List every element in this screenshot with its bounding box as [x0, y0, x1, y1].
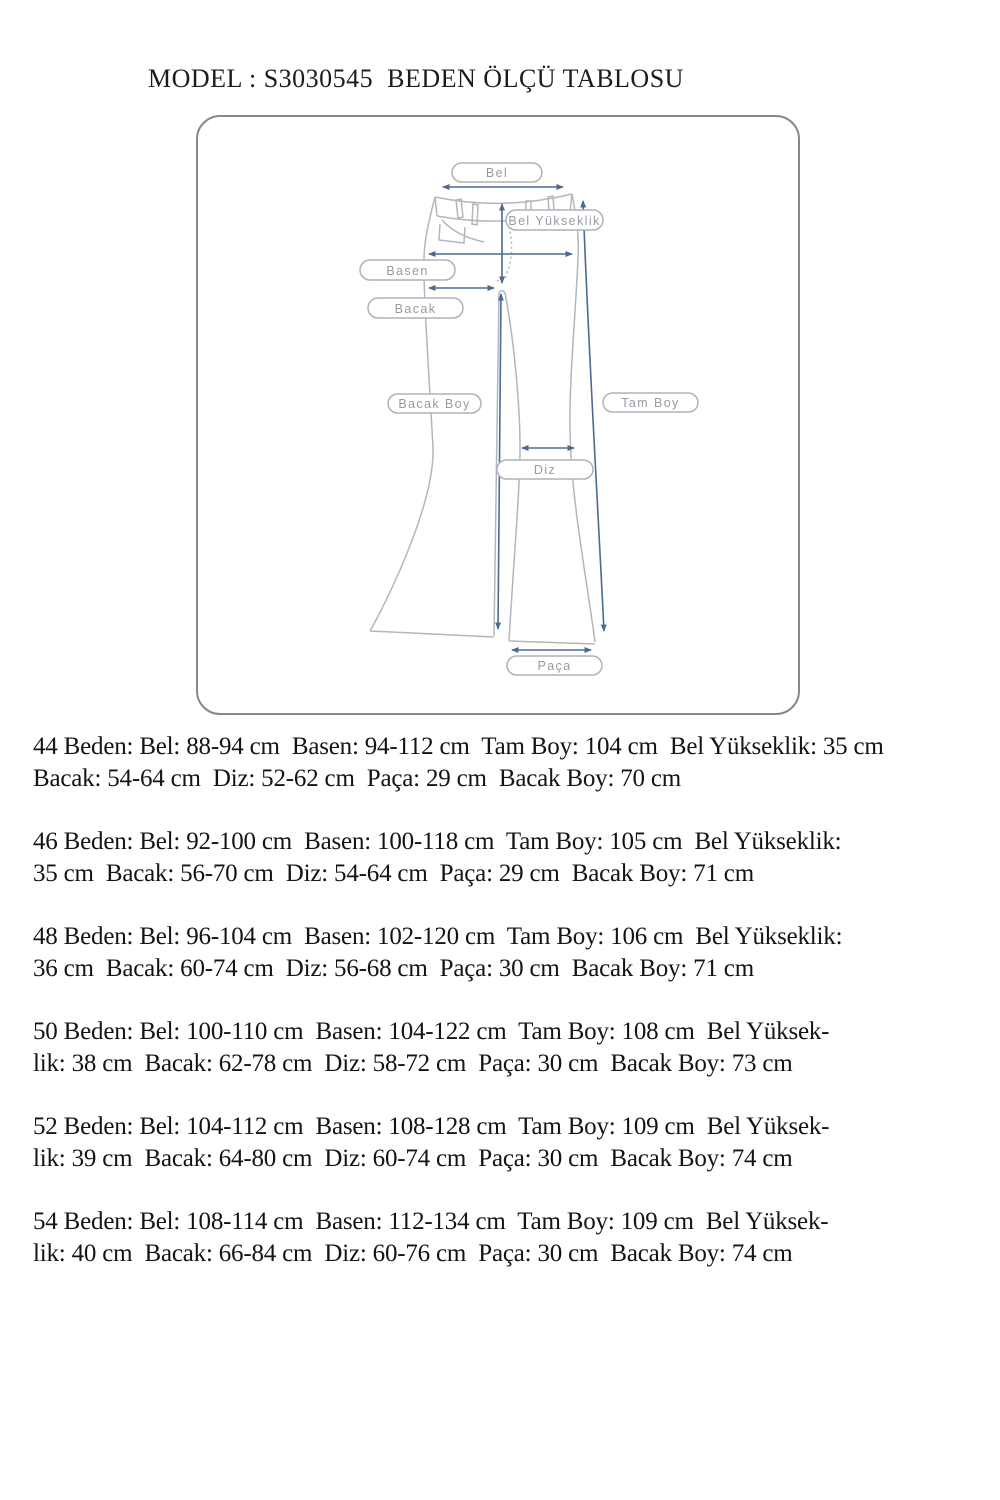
label-paca: Paça [507, 656, 602, 675]
size-row-44-line1: 44 Beden: Bel: 88-94 cm Basen: 94-112 cm… [33, 733, 884, 760]
label-bacak: Bacak [368, 298, 463, 318]
size-row-54-line2: lik: 40 cm Bacak: 66-84 cm Diz: 60-76 cm… [33, 1240, 793, 1267]
size-row-54-line1: 54 Beden: Bel: 108-114 cm Basen: 112-134… [33, 1208, 828, 1235]
size-row-50: 50 Beden: Bel: 100-110 cm Basen: 104-122… [33, 1016, 973, 1080]
size-row-50-line2: lik: 38 cm Bacak: 62-78 cm Diz: 58-72 cm… [33, 1050, 793, 1077]
label-basen: Basen [360, 260, 455, 280]
size-row-48-line1: 48 Beden: Bel: 96-104 cm Basen: 102-120 … [33, 923, 842, 950]
size-measurement-list: 44 Beden: Bel: 88-94 cm Basen: 94-112 cm… [33, 731, 973, 1270]
svg-text:Bel Yükseklik: Bel Yükseklik [508, 214, 600, 228]
diagram-labels: Bel Bel Yükseklik Basen Bacak Bacak Boy … [360, 163, 698, 675]
size-row-52-line1: 52 Beden: Bel: 104-112 cm Basen: 108-128… [33, 1113, 829, 1140]
size-row-54: 54 Beden: Bel: 108-114 cm Basen: 112-134… [33, 1206, 973, 1270]
size-diagram-frame: Bel Bel Yükseklik Basen Bacak Bacak Boy … [196, 115, 800, 715]
svg-text:Bacak Boy: Bacak Boy [398, 397, 470, 411]
size-row-52: 52 Beden: Bel: 104-112 cm Basen: 108-128… [33, 1111, 973, 1175]
label-bel-yukseklik: Bel Yükseklik [506, 210, 603, 230]
size-row-46-line1: 46 Beden: Bel: 92-100 cm Basen: 100-118 … [33, 828, 841, 855]
svg-text:Bacak: Bacak [395, 302, 437, 316]
label-bel: Bel [452, 163, 542, 182]
svg-text:Bel: Bel [486, 166, 508, 180]
label-tam-boy: Tam Boy [603, 393, 698, 412]
label-bacak-boy: Bacak Boy [388, 394, 481, 413]
size-row-44: 44 Beden: Bel: 88-94 cm Basen: 94-112 cm… [33, 731, 973, 795]
svg-text:Basen: Basen [386, 264, 428, 278]
size-row-52-line2: lik: 39 cm Bacak: 64-80 cm Diz: 60-74 cm… [33, 1145, 793, 1172]
svg-text:Paça: Paça [537, 659, 571, 673]
pants-measurement-diagram: Bel Bel Yükseklik Basen Bacak Bacak Boy … [196, 115, 800, 715]
size-row-46: 46 Beden: Bel: 92-100 cm Basen: 100-118 … [33, 826, 973, 890]
size-row-48: 48 Beden: Bel: 96-104 cm Basen: 102-120 … [33, 921, 973, 985]
size-row-44-line2: Bacak: 54-64 cm Diz: 52-62 cm Paça: 29 c… [33, 765, 681, 792]
size-row-48-line2: 36 cm Bacak: 60-74 cm Diz: 56-68 cm Paça… [33, 955, 754, 982]
svg-text:Diz: Diz [534, 463, 556, 477]
label-diz: Diz [497, 460, 593, 479]
size-row-46-line2: 35 cm Bacak: 56-70 cm Diz: 54-64 cm Paça… [33, 860, 754, 887]
tam-boy-arrow [583, 201, 604, 631]
size-row-50-line1: 50 Beden: Bel: 100-110 cm Basen: 104-122… [33, 1018, 829, 1045]
svg-text:Tam Boy: Tam Boy [621, 396, 679, 410]
page-title: MODEL : S3030545 BEDEN ÖLÇÜ TABLOSU [148, 64, 684, 94]
